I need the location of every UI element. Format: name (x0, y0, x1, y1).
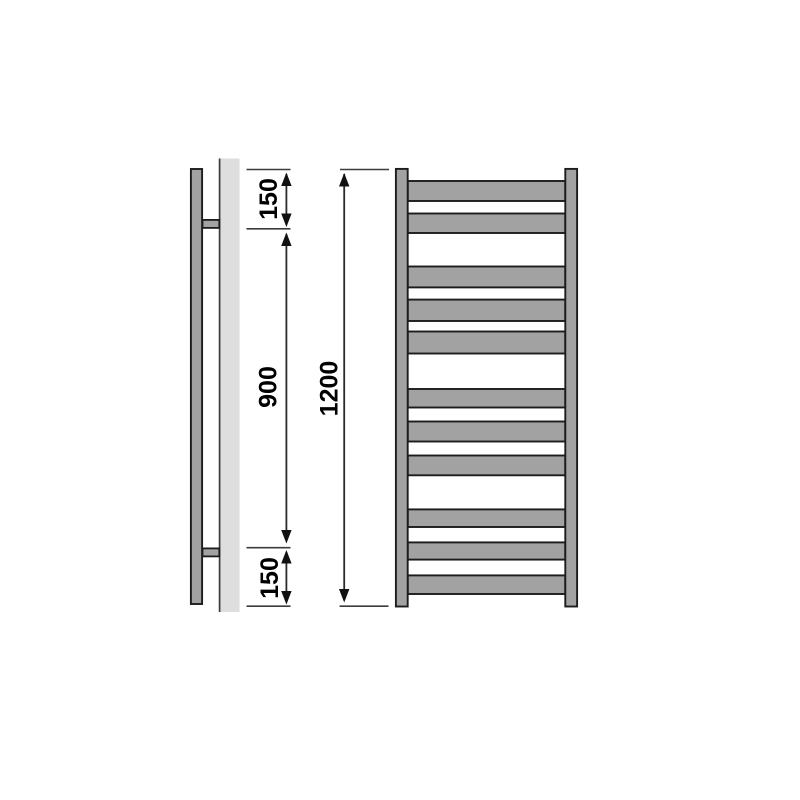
svg-text:150: 150 (255, 178, 283, 220)
svg-text:900: 900 (254, 366, 282, 408)
svg-text:1200: 1200 (315, 361, 343, 417)
svg-text:150: 150 (256, 557, 284, 599)
